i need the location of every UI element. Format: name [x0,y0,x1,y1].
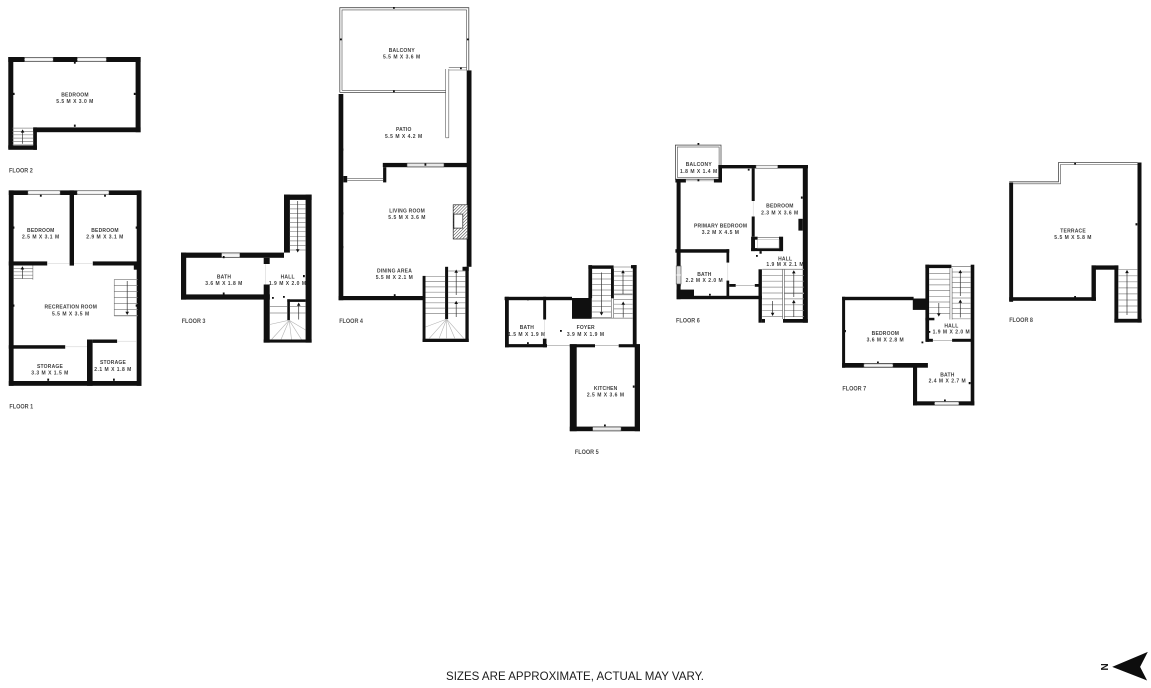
svg-text:3.6 M X 2.8 M: 3.6 M X 2.8 M [867,337,905,343]
svg-text:1.9 M X 2.0 M: 1.9 M X 2.0 M [269,281,307,287]
svg-text:1.8 M X 1.4 M: 1.8 M X 1.4 M [680,169,718,175]
svg-text:BATH: BATH [940,372,955,378]
svg-text:FLOOR 5: FLOOR 5 [575,449,599,456]
svg-text:FLOOR 7: FLOOR 7 [842,385,866,392]
svg-text:BEDROOM: BEDROOM [766,204,794,210]
svg-text:BATH: BATH [217,275,232,281]
svg-text:TERRACE: TERRACE [1060,228,1086,234]
svg-text:FLOOR 4: FLOOR 4 [339,318,363,325]
svg-text:2.4 M X 2.7 M: 2.4 M X 2.7 M [929,379,967,385]
svg-text:5.5 M X 3.0 M: 5.5 M X 3.0 M [56,99,94,105]
svg-text:BEDROOM: BEDROOM [61,93,89,99]
svg-text:1.9 M X 2.0 M: 1.9 M X 2.0 M [933,329,971,335]
svg-text:5.5 M X 4.2 M: 5.5 M X 4.2 M [385,134,423,140]
svg-text:BALCONY: BALCONY [389,48,416,54]
svg-text:FLOOR 3: FLOOR 3 [182,318,206,325]
svg-text:BEDROOM: BEDROOM [872,331,900,337]
svg-text:5.5 M X 5.8 M: 5.5 M X 5.8 M [1054,235,1092,241]
svg-text:STORAGE: STORAGE [100,360,126,366]
svg-text:2.3 M X 3.6 M: 2.3 M X 3.6 M [761,210,799,216]
svg-text:2.2 M X 2.0 M: 2.2 M X 2.0 M [686,278,724,284]
svg-text:3.6 M X 1.8 M: 3.6 M X 1.8 M [205,281,243,287]
svg-text:5.5 M X 3.6 M: 5.5 M X 3.6 M [388,215,426,221]
svg-text:KITCHEN: KITCHEN [594,386,618,392]
svg-text:FLOOR 1: FLOOR 1 [9,403,33,410]
svg-text:BATH: BATH [697,272,712,278]
svg-text:HALL: HALL [281,275,295,281]
svg-text:BEDROOM: BEDROOM [27,228,55,234]
svg-text:N: N [1100,663,1111,670]
svg-text:FOYER: FOYER [577,325,595,331]
svg-text:3.3 M X 1.5 M: 3.3 M X 1.5 M [31,371,69,377]
svg-text:1.9 M X 2.1 M: 1.9 M X 2.1 M [766,262,804,268]
svg-text:3.9 M X 1.9 M: 3.9 M X 1.9 M [567,332,605,338]
svg-text:RECREATION ROOM: RECREATION ROOM [44,305,97,311]
svg-text:5.5 M X 2.1 M: 5.5 M X 2.1 M [376,275,414,281]
svg-text:BATH: BATH [520,325,535,331]
svg-text:LIVING ROOM: LIVING ROOM [389,208,425,214]
svg-text:5.5 M X 3.6 M: 5.5 M X 3.6 M [383,54,421,60]
svg-text:3.2 M X 4.5 M: 3.2 M X 4.5 M [702,230,740,236]
svg-text:2.5 M X 3.6 M: 2.5 M X 3.6 M [587,393,625,399]
svg-text:BALCONY: BALCONY [686,162,713,168]
svg-text:FLOOR 6: FLOOR 6 [676,317,700,324]
svg-text:FLOOR 8: FLOOR 8 [1009,317,1033,324]
svg-text:PRIMARY BEDROOM: PRIMARY BEDROOM [694,223,747,229]
svg-text:5.5 M X 3.5 M: 5.5 M X 3.5 M [52,311,90,317]
svg-text:FLOOR 2: FLOOR 2 [9,167,33,174]
svg-text:PATIO: PATIO [396,127,412,133]
svg-text:STORAGE: STORAGE [37,364,63,370]
svg-text:SIZES ARE APPROXIMATE, ACTUAL: SIZES ARE APPROXIMATE, ACTUAL MAY VARY. [446,669,704,683]
svg-text:2.5 M X 3.1 M: 2.5 M X 3.1 M [22,234,60,240]
svg-text:2.1 M X 1.8 M: 2.1 M X 1.8 M [94,367,132,373]
svg-text:2.9 M X 3.1 M: 2.9 M X 3.1 M [86,234,124,240]
svg-text:1.5 M X 1.9 M: 1.5 M X 1.9 M [508,332,546,338]
svg-text:BEDROOM: BEDROOM [91,228,119,234]
svg-text:DINING AREA: DINING AREA [377,269,412,275]
